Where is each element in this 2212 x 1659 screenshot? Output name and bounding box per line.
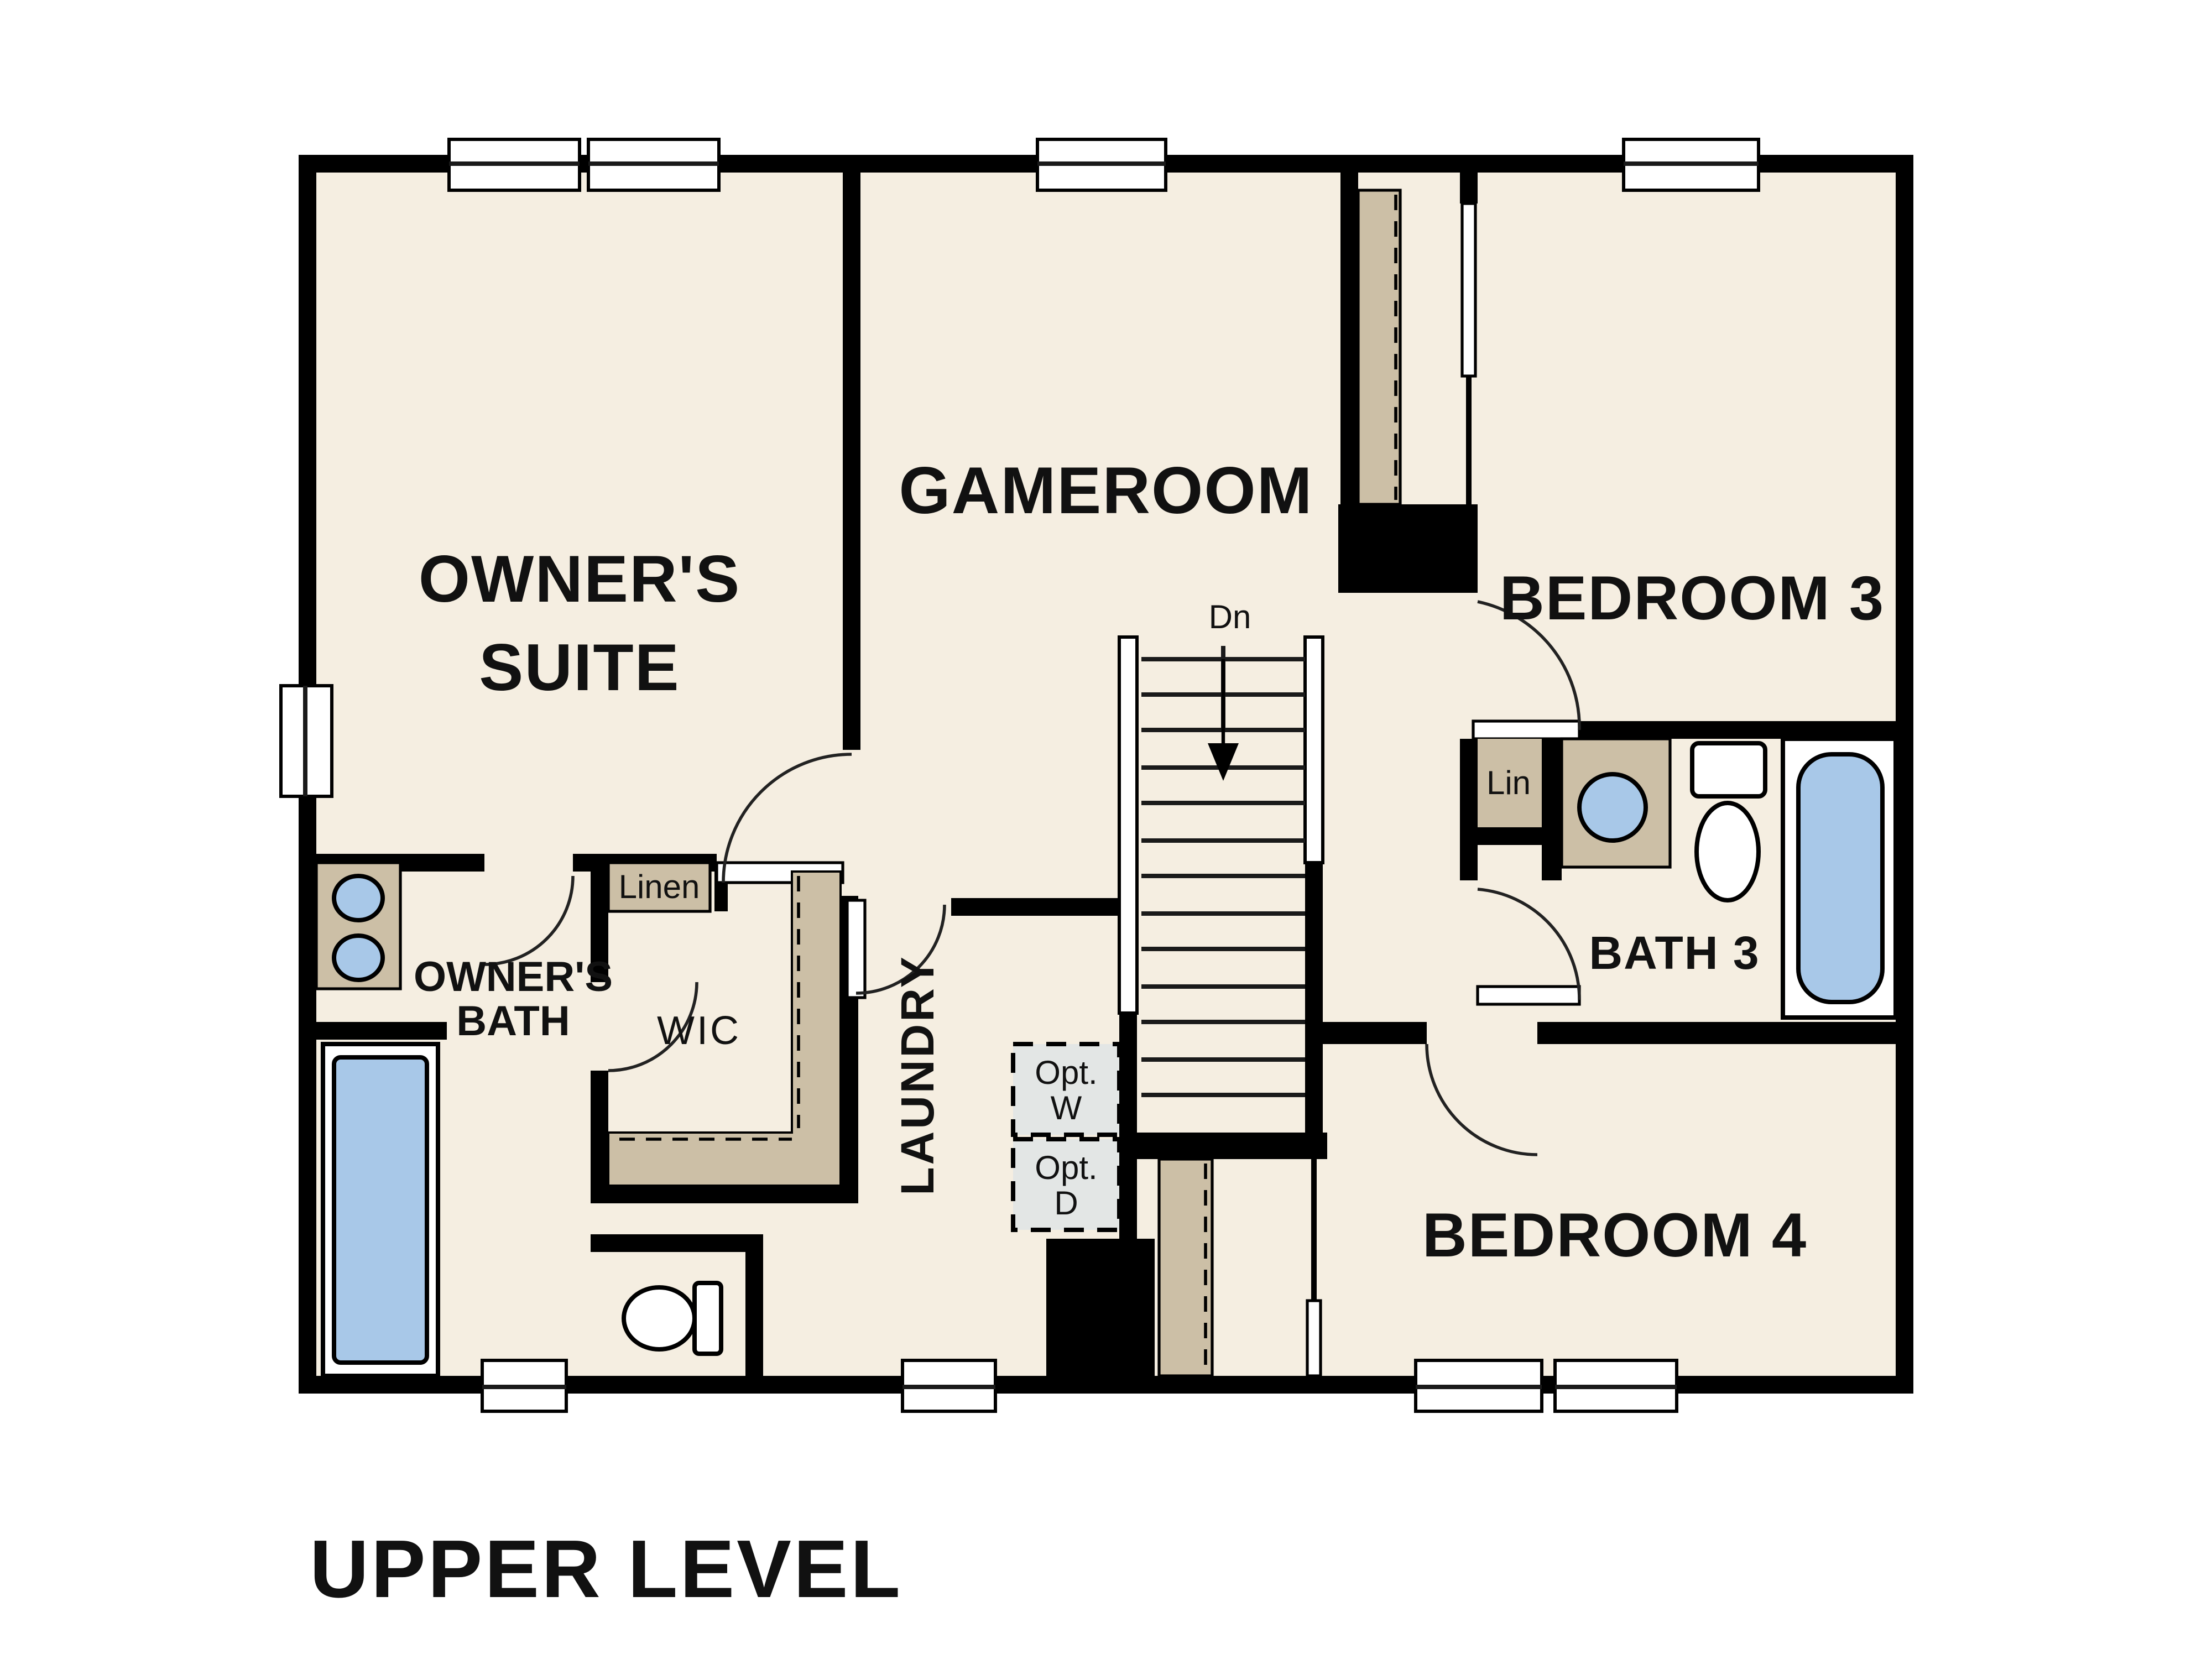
plan-title: UPPER LEVEL (310, 1524, 902, 1615)
stairs-dn-label: Dn (1209, 598, 1251, 635)
bath3-toilet-tank-icon (1692, 743, 1765, 796)
wic-label: WIC (657, 1009, 741, 1053)
upper-chase (1358, 190, 1400, 504)
linen-label: Linen (619, 868, 700, 905)
stair-rail-left (1119, 637, 1137, 1013)
bath3-door-sill (1478, 987, 1579, 1004)
laundry-door-sill (847, 900, 865, 998)
owners-suite-label-line2: SUITE (479, 630, 680, 705)
opt-dryer-label-line1: Opt. (1035, 1149, 1097, 1186)
stair-rail-right (1305, 637, 1323, 863)
bedroom3-pocket-door (1462, 204, 1475, 376)
owners-suite-label-line1: OWNER'S (419, 542, 741, 616)
opt-washer-label-line2: W (1051, 1089, 1082, 1126)
bathtub-icon (1798, 754, 1882, 1002)
bath3-sink-icon (1579, 774, 1646, 841)
gameroom-label: GAMEROOM (899, 453, 1313, 528)
floor-plan: OWNER'S SUITE GAMEROOM BEDROOM 3 BATH 3 … (0, 0, 2212, 1659)
lin-label: Lin (1486, 764, 1531, 801)
floor-plan-page: OWNER'S SUITE GAMEROOM BEDROOM 3 BATH 3 … (0, 0, 2212, 1659)
owners-bath-label-line1: OWNER'S (414, 953, 613, 1000)
vanity-sink-icon (334, 936, 383, 980)
bedroom4-label: BEDROOM 4 (1422, 1201, 1807, 1270)
bath3-label: BATH 3 (1589, 927, 1760, 979)
toilet-tank-icon (695, 1283, 721, 1354)
bedroom3-label: BEDROOM 3 (1500, 564, 1885, 633)
opt-dryer-label-line2: D (1054, 1185, 1078, 1222)
opt-washer-label-line1: Opt. (1035, 1054, 1097, 1091)
bedroom4-pocket-door (1307, 1301, 1321, 1376)
bedroom3-door-sill (1473, 721, 1579, 739)
vanity-sink-icon (334, 876, 383, 920)
owners-bath-label-line2: BATH (456, 998, 570, 1045)
toilet-bowl-icon (624, 1287, 695, 1349)
laundry-label: LAUNDRY (891, 954, 943, 1196)
shower-icon (334, 1057, 427, 1363)
bath3-toilet-bowl-icon (1697, 803, 1759, 900)
